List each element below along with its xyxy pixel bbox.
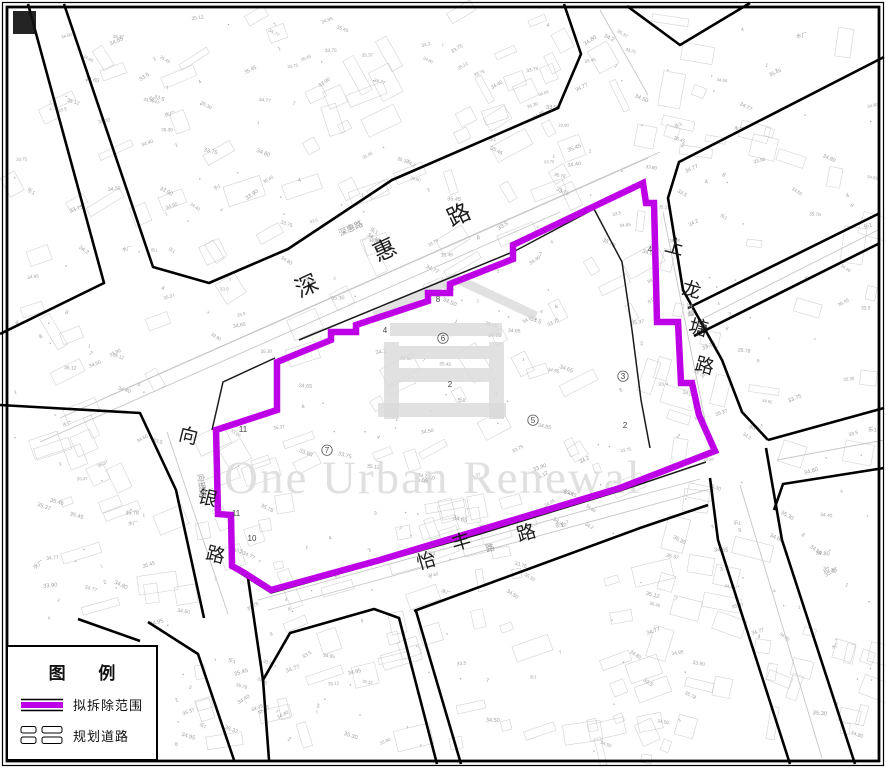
elevation-label: 7 [441, 43, 444, 48]
survey-dot [461, 300, 462, 301]
elevation-label: 33.90 [558, 123, 569, 128]
parcel-outline [587, 717, 626, 741]
elevation-label: 34.40 [820, 512, 833, 519]
elevation-label: 35.30 [260, 349, 272, 354]
parcel-outline [749, 385, 780, 396]
elevation-label: 1 [798, 605, 802, 610]
survey-dot [609, 446, 610, 447]
elevation-label: 7 [88, 351, 93, 358]
elevation-label: 35.45 [244, 65, 258, 76]
elevation-label: 35.78 [683, 690, 697, 701]
survey-dot [355, 296, 356, 297]
survey-dot [685, 498, 686, 499]
elevation-label: 33.90 [245, 189, 260, 202]
survey-dot [199, 178, 200, 179]
parcel-outline [98, 495, 122, 513]
elevation-label: 35.37 [362, 52, 374, 58]
watermark-text: One Urban Renewal [224, 452, 642, 504]
elevation-label: 33.90 [43, 582, 58, 589]
survey-dot [867, 515, 868, 516]
elevation-label: 34.77 [575, 82, 590, 93]
elevation-label: 4 [301, 404, 306, 411]
elevation-label: 33.5 [612, 210, 622, 217]
survey-dot [835, 638, 836, 639]
survey-dot [138, 251, 139, 252]
elevation-label: 34.77 [241, 550, 256, 561]
parcel-outline [244, 6, 268, 26]
survey-dot [716, 286, 717, 287]
road-edge [0, 4, 104, 334]
elevation-label: 33.75 [625, 47, 637, 55]
elevation-label: 3 [476, 298, 479, 303]
road-name-label: 深 [291, 269, 323, 302]
parcel-outline [859, 370, 877, 386]
lane-line [600, 10, 648, 95]
elevation-label: 35.37 [97, 459, 110, 469]
elevation-label: 4 [297, 177, 302, 184]
elevation-label: 35.37 [273, 424, 286, 431]
elevation-label: 乐1 [719, 212, 729, 222]
survey-dot [363, 211, 364, 212]
parcel-outline [559, 369, 598, 397]
parcel-outline [199, 238, 227, 265]
corner-mark [13, 11, 36, 34]
elevation-label: 3 [187, 685, 192, 692]
survey-dot [742, 223, 743, 224]
elevation-label: 35.12 [645, 591, 660, 600]
survey-dot [321, 61, 322, 62]
elevation-label: 1 [305, 545, 309, 551]
elevation-label: 34.50 [177, 608, 191, 616]
elevation-label: 34.80 [279, 255, 293, 267]
parcel-outline [282, 174, 323, 200]
elevation-label: 35.12 [191, 14, 204, 21]
elevation-label: 34.95 [27, 273, 40, 280]
survey-dot [537, 227, 538, 228]
elevation-label: 4 [197, 79, 203, 86]
elevation-label: 34.65 [508, 328, 521, 334]
parcel-outline [778, 440, 807, 468]
elevation-label: 33.5 [237, 311, 247, 318]
parcel-number: 10 [248, 534, 257, 543]
elevation-label: 35.45 [441, 252, 454, 258]
parcel-outline [256, 223, 283, 245]
road-name-label: 龙 [680, 277, 704, 303]
elevation-label: 8 [721, 172, 727, 179]
parcel-outline [195, 522, 211, 540]
elevation-label: 34.77 [738, 101, 753, 113]
elevation-label: 33.75 [526, 66, 539, 74]
road-name-label-small: 路 [484, 541, 496, 554]
elevation-label: 35.45 [362, 150, 374, 160]
survey-dot [783, 605, 784, 606]
elevation-label: 35.78 [554, 172, 566, 179]
survey-dot [804, 115, 805, 116]
elevation-label: 4 [160, 285, 165, 292]
survey-dot [65, 265, 66, 266]
elevation-label: 34.77 [424, 264, 439, 276]
elevation-label: 34.77 [646, 626, 661, 637]
elevation-label: 35.12 [362, 679, 374, 686]
parcel-outline [657, 572, 676, 592]
parcel-outline [511, 351, 534, 377]
elevation-label: 34.80 [628, 649, 642, 661]
elevation-label: 3 [728, 311, 731, 316]
elevation-label: 34.65 [791, 186, 804, 197]
parcel-outline [495, 45, 517, 59]
survey-dot [857, 678, 858, 679]
elevation-label: 4 [47, 615, 52, 621]
elevation-label: 35.37 [396, 156, 410, 165]
elevation-label: 33.5 [309, 217, 319, 224]
elevation-label: 33.90 [210, 332, 223, 342]
elevation-label: 34.65 [538, 89, 550, 97]
elevation-label: 33.5 [676, 189, 688, 199]
elevation-label: 35.78 [737, 348, 750, 355]
survey-dot [711, 75, 712, 76]
legend-item-demolition-scope: 拟拆除范围 [20, 695, 156, 714]
elevation-label: 33.75 [544, 159, 555, 164]
survey-dot [407, 726, 408, 727]
parcel-outline [380, 644, 422, 670]
parcel-outline [754, 639, 771, 654]
elevation-label: 水厂 [795, 31, 808, 41]
survey-dot [445, 394, 446, 395]
elevation-label: 35.78 [260, 503, 275, 514]
elevation-label: 35.37 [631, 319, 645, 327]
elevation-label: 7 [565, 520, 568, 526]
elevation-label: 34.95 [165, 201, 179, 211]
parcel-outline [396, 525, 412, 540]
parcel-number: 11 [239, 425, 248, 434]
survey-dot [410, 535, 411, 536]
elevation-label: 35.78 [235, 682, 248, 690]
parcel-outline [81, 597, 120, 615]
elevation-label: 7 [292, 101, 297, 108]
elevation-label: 35.37 [77, 476, 89, 481]
parcel-outline [503, 71, 526, 91]
survey-dot [548, 289, 549, 290]
elevation-label: 35.12 [457, 61, 470, 71]
elevation-label: 8 [38, 334, 44, 341]
elevation-label: 34.77 [684, 164, 699, 175]
elevation-label: 33.90 [692, 660, 706, 668]
elevation-label: 34.40 [490, 79, 504, 91]
parcel-outline [766, 670, 793, 689]
survey-dot [292, 611, 293, 612]
parcel-outline [667, 410, 691, 426]
survey-dot [870, 121, 871, 122]
parcel-outline [106, 463, 132, 494]
elevation-label: 33.90 [645, 164, 658, 171]
elevation-label: 8 [476, 235, 480, 242]
elevation-label: 34.40 [141, 139, 155, 149]
elevation-label: 35.37 [665, 553, 679, 562]
survey-dot [183, 674, 184, 675]
elevation-label: 8 [550, 239, 555, 245]
survey-dot [75, 561, 76, 562]
parcel-outline [524, 722, 556, 740]
parcel-outline [776, 149, 806, 169]
elevation-label: 35.45 [837, 297, 851, 308]
elevation-label: 4 [840, 489, 843, 494]
elevation-label: 34.50 [657, 718, 670, 725]
parcel-outline [685, 677, 715, 692]
parcel-outline [273, 561, 283, 570]
survey-dot [508, 316, 509, 317]
parcel-outline [512, 78, 538, 103]
elevation-label: 34.2 [742, 431, 753, 440]
elevation-label: 乐1 [863, 221, 874, 231]
elevation-label: 4 [546, 23, 549, 29]
elevation-label: 1 [99, 563, 104, 569]
parcel-outline [826, 166, 843, 188]
elevation-label: 34.40 [237, 694, 252, 706]
elevation-label: 35.37 [113, 34, 125, 39]
elevation-label: 35.37 [163, 292, 176, 300]
elevation-label: 34.65 [619, 222, 631, 228]
road-edge [78, 619, 140, 641]
elevation-label: 8 [269, 631, 274, 637]
elevation-label: 4 [375, 434, 381, 441]
parcel-outline [500, 720, 512, 732]
elevation-label: 34.65 [537, 423, 551, 432]
elevation-label: 水厂 [164, 110, 176, 119]
parcel-outline [634, 676, 672, 703]
parcel-outline [658, 71, 686, 109]
elevation-label: 3 [367, 547, 373, 554]
elevation-label: 33.75 [287, 62, 299, 69]
elevation-label: 3 [677, 717, 682, 723]
elevation-label: 33.90 [143, 97, 155, 104]
elevation-label: 乐1 [227, 657, 237, 666]
survey-dot [324, 699, 325, 700]
watermark-logo-bar [378, 403, 506, 417]
survey-dot [283, 214, 284, 215]
elevation-label: 35.45 [300, 53, 313, 62]
parcel-outline [59, 326, 83, 345]
parcel-outline [793, 298, 822, 318]
legend-item-planned-road: 规划道路 [20, 725, 156, 745]
survey-dot [613, 533, 614, 534]
parcel-outline [691, 85, 706, 99]
legend-item-label: 规划道路 [73, 726, 129, 745]
elevation-label: 34.80 [113, 580, 128, 591]
parcel-outline [631, 559, 674, 588]
elevation-label: 33.75 [547, 317, 561, 328]
parcel-number: 3 [621, 372, 626, 381]
elevation-label: 33.5 [138, 72, 150, 83]
elevation-label: 3 [496, 268, 500, 274]
elevation-label: 8 [64, 310, 69, 317]
parcel-outline [855, 704, 868, 725]
survey-dot [738, 586, 739, 587]
survey-dot [709, 277, 710, 278]
elevation-label: 2 [640, 341, 644, 347]
road-edge [768, 408, 884, 440]
survey-dot [341, 204, 342, 205]
elevation-label: 乐1 [457, 397, 465, 404]
survey-dot [507, 401, 508, 402]
parcel-outline [583, 257, 599, 276]
elevation-label: 35.45 [567, 143, 582, 154]
elevation-label: 34.40 [567, 161, 581, 169]
elevation-label: 乐1 [529, 673, 537, 680]
elevation-label: 34.40 [189, 201, 201, 212]
elevation-label: 35.45 [584, 57, 596, 64]
parcel-outline [348, 180, 389, 207]
elevation-label: 7 [229, 277, 233, 283]
elevation-label: 34.50 [61, 32, 73, 40]
elevation-label: 乐1 [25, 186, 36, 196]
lane-line [692, 229, 880, 324]
parcel-number: 2 [623, 421, 628, 430]
legend-item-label: 拟拆除范围 [73, 695, 143, 714]
elevation-label: 4 [716, 301, 721, 307]
elevation-label: 7 [558, 650, 563, 657]
elevation-label: 7 [674, 596, 678, 602]
parcel-outline [712, 676, 733, 698]
elevation-label: 35.30 [526, 101, 539, 110]
elevation-label: 33.5 [861, 305, 871, 311]
parcel-outline [86, 188, 124, 216]
elevation-label: 水厂 [31, 558, 45, 571]
survey-dot [667, 70, 668, 71]
survey-dot [870, 668, 871, 669]
elevation-label: 35.45 [262, 174, 275, 184]
elevation-label: 35.45 [489, 146, 503, 157]
elevation-label: 1 [88, 343, 92, 348]
parcel-outline [610, 679, 628, 697]
survey-dot [761, 424, 762, 425]
elevation-label: 34.65 [558, 364, 573, 374]
elevation-label: 35.45 [649, 601, 661, 609]
parcel-number: 5 [531, 416, 536, 425]
survey-dot [497, 423, 498, 424]
elevation-label: 1 [13, 389, 18, 396]
elevation-label: 2 [286, 737, 291, 744]
planned-road-swatch [20, 725, 64, 745]
survey-dot [598, 444, 599, 445]
survey-dot [228, 24, 229, 25]
survey-dot [188, 221, 189, 222]
swatch-magenta-bar [21, 702, 63, 708]
survey-dot [825, 457, 826, 458]
elevation-label: 2 [57, 597, 62, 603]
parcel-outline [137, 571, 178, 595]
elevation-label: 34.77 [258, 97, 271, 104]
elevation-label: 水厂 [122, 245, 133, 253]
elevation-label: 1 [552, 154, 556, 159]
elevation-label: 7 [485, 678, 489, 685]
elevation-label: 8 [361, 618, 365, 623]
survey-dot [371, 589, 372, 590]
elevation-label: 34.80 [867, 102, 879, 109]
parcel-outline [424, 517, 440, 540]
parcel-outline [660, 739, 672, 753]
survey-dot [405, 512, 406, 513]
parcel-outline [600, 650, 632, 670]
survey-dot [641, 125, 642, 126]
elevation-label: 7 [315, 709, 319, 715]
parcel-outline [652, 14, 689, 27]
parcel-number: 2 [448, 380, 453, 389]
survey-dot [215, 659, 216, 660]
survey-dot [395, 427, 396, 428]
elevation-label: 33.5 [301, 650, 313, 660]
elevation-label: 乐1 [555, 522, 564, 530]
elevation-label: 34.80 [583, 35, 598, 48]
elevation-label: 35.45 [49, 498, 64, 507]
survey-dot [14, 177, 15, 178]
legend: 图 例 拟拆除范围 规划道路 [6, 645, 158, 761]
survey-dot [613, 704, 614, 705]
elevation-label: 7 [273, 22, 279, 29]
survey-dot [280, 196, 281, 197]
watermark: One Urban Renewal [224, 278, 642, 504]
elevation-label: 33.5 [497, 221, 510, 232]
survey-dot [735, 280, 736, 281]
elevation-label: 4 [757, 634, 760, 640]
parcel-outline [842, 440, 874, 466]
parcel-outline [70, 429, 98, 457]
elevation-label: 乐1 [868, 426, 877, 433]
parcel-outline [634, 124, 657, 149]
elevation-label: 34.80 [804, 467, 819, 477]
road-edge [688, 213, 880, 308]
parcel-outline [317, 627, 342, 654]
elevation-label: 8 [849, 202, 854, 209]
survey-dot [727, 182, 728, 183]
elevation-label: 33.75 [325, 48, 338, 54]
survey-dot [396, 420, 397, 421]
elevation-label: 2 [680, 143, 684, 150]
survey-dot [275, 665, 276, 666]
elevation-label: 34.2 [421, 41, 431, 48]
elevation-label: 水厂 [830, 641, 841, 651]
parcel-outline [835, 27, 854, 58]
elevation-label: 34.80 [422, 55, 434, 65]
elevation-label: 34.50 [136, 433, 150, 444]
elevation-label: 34.50 [600, 740, 613, 749]
elevation-label: 33.75 [16, 156, 28, 161]
parcel-outline [346, 81, 387, 107]
survey-dot [685, 672, 686, 673]
elevation-label: 34.40 [840, 263, 852, 274]
parcel-outline [0, 171, 24, 197]
elevation-label: 2 [588, 148, 592, 154]
survey-dot [768, 338, 769, 339]
elevation-label: 34.80 [850, 730, 864, 740]
parcel-outline [455, 106, 477, 127]
elevation-label: 34.65 [452, 515, 468, 525]
survey-dot [428, 672, 429, 673]
survey-dot [116, 587, 117, 588]
elevation-label: 33.5 [642, 678, 654, 689]
parcel-outline [405, 584, 440, 609]
elevation-label: 35.45 [439, 361, 451, 367]
survey-dot [814, 338, 815, 339]
road-name-label: 路 [443, 198, 475, 231]
legend-title: 图 例 [8, 659, 156, 684]
parcel-outline [447, 0, 476, 24]
elevation-label: 35.30 [672, 535, 687, 546]
elevation-label: 4 [554, 304, 560, 311]
elevation-label: 35.37 [616, 28, 629, 39]
parcel-outline [528, 14, 547, 27]
elevation-label: 乐1 [199, 721, 208, 729]
survey-dot [334, 431, 335, 432]
